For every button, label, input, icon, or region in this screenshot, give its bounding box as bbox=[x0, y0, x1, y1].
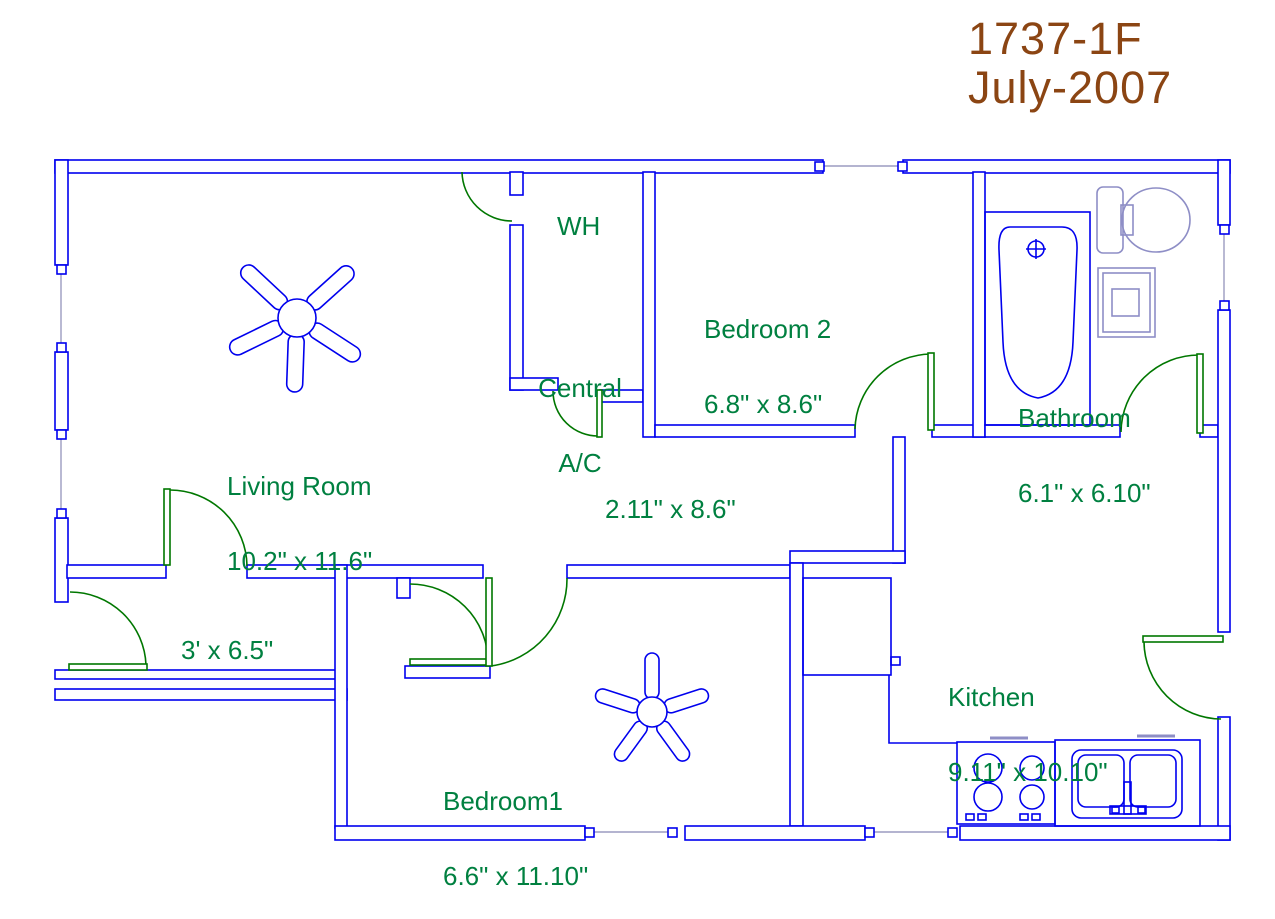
floor-plan-page: WH Central A/C Bedroom 2 6.8" x 8.6" Bat… bbox=[0, 0, 1275, 919]
kitchen-dims: 9.11" x 10.10" bbox=[948, 760, 1108, 785]
door-closet bbox=[410, 584, 488, 665]
kitchen-name: Kitchen bbox=[948, 685, 1108, 710]
room-label-bathroom: Bathroom 6.1" x 6.10" bbox=[1018, 356, 1151, 556]
door-bedroom1 bbox=[486, 578, 567, 666]
refrigerator bbox=[803, 578, 957, 743]
toilet bbox=[1097, 187, 1190, 253]
ceiling-fan-bedroom1 bbox=[594, 653, 711, 764]
living-room-name: Living Room bbox=[227, 474, 372, 499]
plan-number: 1737-1F bbox=[968, 14, 1172, 63]
title-block: 1737-1F July-2007 bbox=[968, 14, 1172, 112]
bedroom1-dims: 6.6" x 11.10" bbox=[443, 864, 588, 889]
room-label-bedroom1: Bedroom1 6.6" x 11.10" bbox=[443, 739, 588, 919]
room-label-wh: WH bbox=[557, 214, 600, 239]
bedroom2-dims: 6.8" x 8.6" bbox=[704, 392, 831, 417]
room-label-kitchen: Kitchen 9.11" x 10.10" bbox=[948, 635, 1108, 835]
entry-hall-dims: 3' x 6.5" bbox=[181, 638, 273, 663]
room-label-living-room: Living Room 10.2" x 11.6" bbox=[227, 424, 372, 624]
ceiling-fan-living-room bbox=[227, 262, 363, 393]
door-kitchen-side bbox=[1143, 636, 1223, 719]
corridor-dims: 2.11" x 8.6" bbox=[605, 497, 736, 522]
vanity-sink bbox=[1098, 268, 1155, 337]
living-room-dims: 10.2" x 11.6" bbox=[227, 549, 372, 574]
bedroom2-name: Bedroom 2 bbox=[704, 317, 831, 342]
door-wh-closet bbox=[462, 172, 512, 221]
central-ac-line1: Central bbox=[536, 376, 624, 401]
plan-date: July-2007 bbox=[968, 63, 1172, 112]
bathroom-dims: 6.1" x 6.10" bbox=[1018, 481, 1151, 506]
door-bedroom2 bbox=[855, 353, 934, 430]
bedroom1-name: Bedroom1 bbox=[443, 789, 588, 814]
room-label-bedroom2: Bedroom 2 6.8" x 8.6" bbox=[704, 267, 831, 467]
door-front-entry bbox=[69, 592, 147, 670]
bathroom-name: Bathroom bbox=[1018, 406, 1151, 431]
central-ac-line2: A/C bbox=[536, 451, 624, 476]
